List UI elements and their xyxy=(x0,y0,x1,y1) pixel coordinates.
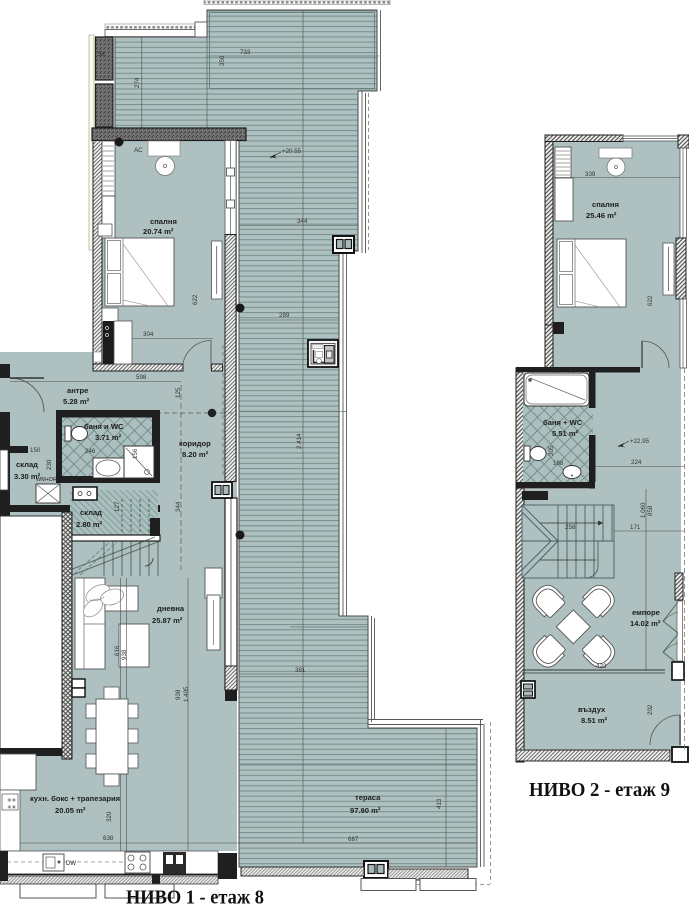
svg-text:304: 304 xyxy=(143,331,154,338)
svg-text:616: 616 xyxy=(114,645,121,656)
svg-text:баня и WC: баня и WC xyxy=(84,422,124,431)
svg-text:224: 224 xyxy=(631,459,642,466)
svg-text:5.28 m²: 5.28 m² xyxy=(63,397,90,406)
svg-text:638: 638 xyxy=(103,835,114,842)
svg-text:97.90 m²: 97.90 m² xyxy=(350,806,381,815)
svg-text:склад: склад xyxy=(16,460,38,469)
svg-text:✳✳: ✳✳ xyxy=(7,804,17,811)
svg-text:150: 150 xyxy=(30,447,41,454)
svg-text:20.74 m²: 20.74 m² xyxy=(143,227,174,236)
svg-text:188: 188 xyxy=(553,460,564,467)
svg-text:8.20 m²: 8.20 m² xyxy=(182,450,209,459)
svg-text:289: 289 xyxy=(279,312,290,319)
svg-text:423: 423 xyxy=(596,663,607,670)
svg-text:DW: DW xyxy=(66,861,76,867)
svg-text:спалня: спалня xyxy=(592,200,619,209)
svg-text:14.02 m²: 14.02 m² xyxy=(630,619,661,628)
svg-text:344: 344 xyxy=(175,501,182,512)
svg-text:+22.95: +22.95 xyxy=(630,438,650,445)
svg-text:емпоре: емпоре xyxy=(632,608,660,617)
svg-text:дневна: дневна xyxy=(157,604,185,613)
svg-text:622: 622 xyxy=(192,294,199,305)
svg-text:320: 320 xyxy=(106,811,113,822)
svg-text:+20.55: +20.55 xyxy=(282,148,302,155)
svg-text:НИВО 2 - етаж 9: НИВО 2 - етаж 9 xyxy=(529,779,670,801)
svg-text:AC: AC xyxy=(134,147,143,154)
svg-text:3.71 m²: 3.71 m² xyxy=(95,433,122,442)
svg-text:305: 305 xyxy=(548,445,555,456)
svg-text:1,060: 1,060 xyxy=(640,502,647,518)
svg-text:339: 339 xyxy=(585,171,596,178)
svg-text:WM+DR: WM+DR xyxy=(36,477,57,483)
svg-text:5.51 m²: 5.51 m² xyxy=(552,429,579,438)
svg-text:413: 413 xyxy=(436,798,443,809)
svg-text:склад: склад xyxy=(80,508,102,517)
svg-text:2.414: 2.414 xyxy=(296,433,303,449)
svg-text:230: 230 xyxy=(46,459,53,470)
svg-text:344: 344 xyxy=(297,218,308,225)
svg-text:156: 156 xyxy=(132,448,139,459)
svg-text:тераса: тераса xyxy=(355,793,381,802)
svg-text:381: 381 xyxy=(295,667,306,674)
svg-text:350: 350 xyxy=(219,55,226,66)
svg-text:25.87 m²: 25.87 m² xyxy=(152,616,183,625)
svg-text:НИВО 1 - етаж 8: НИВО 1 - етаж 8 xyxy=(126,887,264,909)
svg-text:622: 622 xyxy=(647,295,654,306)
svg-text:202: 202 xyxy=(647,704,654,715)
svg-text:✳✳: ✳✳ xyxy=(7,797,17,804)
svg-text:246: 246 xyxy=(85,448,96,455)
svg-text:598: 598 xyxy=(136,374,147,381)
svg-text:258: 258 xyxy=(565,524,576,531)
svg-text:1.405: 1.405 xyxy=(183,686,190,702)
svg-text:25.46 m²: 25.46 m² xyxy=(586,211,617,220)
svg-text:антре: антре xyxy=(67,386,88,395)
svg-text:20.05 m²: 20.05 m² xyxy=(55,806,86,815)
svg-text:687: 687 xyxy=(348,836,359,843)
svg-text:938: 938 xyxy=(121,649,128,660)
svg-text:спалня: спалня xyxy=(150,217,177,226)
svg-text:баня + WC: баня + WC xyxy=(543,418,583,427)
svg-text:2.80 m²: 2.80 m² xyxy=(76,520,103,529)
svg-text:кухн. бокс + трапезария: кухн. бокс + трапезария xyxy=(30,794,120,803)
svg-text:171: 171 xyxy=(630,524,641,531)
svg-text:8.51 m²: 8.51 m² xyxy=(581,716,608,725)
svg-text:938: 938 xyxy=(175,689,182,700)
svg-text:858: 858 xyxy=(647,505,654,516)
svg-text:733: 733 xyxy=(240,49,251,56)
svg-text:коридор: коридор xyxy=(179,439,211,448)
svg-text:54: 54 xyxy=(98,51,105,58)
svg-text:274: 274 xyxy=(134,77,141,88)
svg-text:въздух: въздух xyxy=(578,705,606,714)
svg-text:127: 127 xyxy=(114,501,121,512)
